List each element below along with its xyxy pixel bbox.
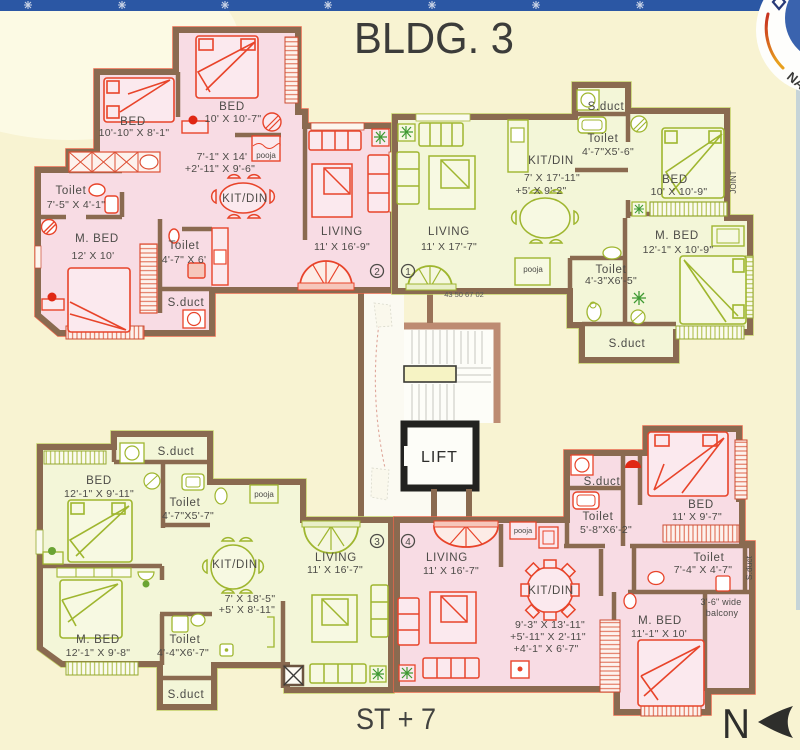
svg-text:4'-4"X6'-7": 4'-4"X6'-7" (157, 647, 209, 659)
svg-text:Toilet: Toilet (169, 634, 200, 646)
svg-text:LIVING: LIVING (426, 552, 468, 564)
svg-text:2: 2 (374, 267, 380, 278)
svg-text:+5'-11" X 2'-11": +5'-11" X 2'-11" (510, 631, 586, 643)
svg-text:M. BED: M. BED (76, 634, 120, 646)
svg-text:BED: BED (86, 475, 112, 487)
svg-text:7'-1" X 14': 7'-1" X 14' (197, 151, 248, 163)
svg-text:LIVING: LIVING (315, 552, 357, 564)
svg-text:10' X 10'-7": 10' X 10'-7" (205, 113, 262, 125)
svg-text:+2'-11" X 9'-6": +2'-11" X 9'-6" (185, 163, 255, 175)
svg-text:7'-4" X 4'-7": 7'-4" X 4'-7" (674, 564, 733, 576)
svg-text:4'-7"X5'-6": 4'-7"X5'-6" (582, 146, 634, 158)
svg-text:ST + 7: ST + 7 (356, 703, 436, 736)
svg-text:LIVING: LIVING (321, 226, 363, 238)
svg-text:S.duct: S.duct (609, 338, 646, 350)
svg-text:LIVING: LIVING (428, 226, 470, 238)
svg-text:M. BED: M. BED (638, 615, 682, 627)
svg-text:+4'-1" X 6'-7": +4'-1" X 6'-7" (514, 643, 579, 655)
svg-text:KIT/DIN: KIT/DIN (212, 559, 258, 571)
svg-text:12' X 10': 12' X 10' (72, 250, 115, 262)
svg-text:pooja: pooja (254, 490, 274, 499)
svg-text:Toilet: Toilet (693, 552, 724, 564)
svg-text:BED: BED (219, 101, 245, 113)
svg-text:KIT/DIN: KIT/DIN (528, 585, 574, 597)
svg-text:S.duct: S.duct (744, 555, 754, 580)
svg-text:M. BED: M. BED (655, 230, 699, 242)
svg-text:pooja: pooja (256, 151, 276, 160)
svg-text:Toilet: Toilet (582, 511, 613, 523)
svg-text:M. BED: M. BED (75, 233, 119, 245)
svg-text:S.duct: S.duct (168, 689, 205, 701)
svg-text:4'-7" X 6': 4'-7" X 6' (162, 254, 207, 266)
svg-text:BLDG. 3: BLDG. 3 (354, 14, 514, 63)
svg-text:Toilet: Toilet (55, 185, 86, 197)
svg-text:12'-1" X 9'-8": 12'-1" X 9'-8" (66, 647, 131, 659)
svg-text:3'-6" wide: 3'-6" wide (701, 597, 742, 607)
svg-text:Toilet: Toilet (169, 497, 200, 509)
svg-text:balcony: balcony (706, 608, 739, 618)
svg-text:BED: BED (688, 499, 714, 511)
svg-text:N: N (722, 700, 750, 747)
svg-text:S.duct: S.duct (168, 297, 205, 309)
svg-text:BED: BED (662, 174, 688, 186)
svg-text:pooja: pooja (514, 526, 533, 535)
svg-text:11' X 16'-7": 11' X 16'-7" (423, 565, 479, 577)
svg-text:10'-10" X 8'-1": 10'-10" X 8'-1" (99, 127, 170, 139)
svg-text:5'-8"X6'-2": 5'-8"X6'-2" (580, 524, 632, 536)
svg-text:9'-3" X 13'-11": 9'-3" X 13'-11" (515, 619, 585, 631)
svg-text:43 50 67 02: 43 50 67 02 (444, 290, 484, 299)
svg-text:11'-1" X 10': 11'-1" X 10' (631, 628, 687, 640)
svg-text:10' X 10'-9": 10' X 10'-9" (651, 186, 708, 198)
svg-text:KIT/DIN: KIT/DIN (222, 193, 268, 205)
svg-text:7'-5" X 4'-1": 7'-5" X 4'-1" (47, 199, 106, 211)
svg-text:1: 1 (405, 267, 411, 278)
svg-text:12'-1" X 9'-11": 12'-1" X 9'-11" (64, 488, 134, 500)
svg-text:11' X 17'-7": 11' X 17'-7" (421, 241, 477, 253)
svg-text:12'-1" X 10'-9": 12'-1" X 10'-9" (643, 244, 714, 256)
svg-text:+5' X 8'-11": +5' X 8'-11" (219, 604, 275, 616)
svg-text:11' X 16'-9": 11' X 16'-9" (314, 241, 370, 253)
svg-text:4: 4 (405, 537, 411, 548)
svg-text:S.duct: S.duct (588, 101, 625, 113)
svg-text:Toilet: Toilet (587, 133, 618, 145)
svg-text:11' X 9'-7": 11' X 9'-7" (672, 511, 722, 523)
svg-text:3: 3 (374, 537, 380, 548)
svg-text:+5' X 9'-2": +5' X 9'-2" (515, 185, 566, 197)
svg-text:4'-3"X6'-5": 4'-3"X6'-5" (585, 275, 637, 287)
svg-text:Toilet: Toilet (168, 240, 199, 252)
svg-text:11' X 16'-7": 11' X 16'-7" (307, 564, 363, 576)
svg-text:4'-7"X5'-7": 4'-7"X5'-7" (162, 510, 214, 522)
svg-text:7' X 17'-11": 7' X 17'-11" (524, 172, 580, 184)
svg-text:KIT/DIN: KIT/DIN (528, 155, 574, 167)
svg-text:S.duct: S.duct (158, 446, 195, 458)
svg-text:pooja: pooja (523, 265, 543, 274)
svg-text:S.duct: S.duct (584, 476, 621, 488)
svg-text:LIFT: LIFT (421, 449, 458, 466)
svg-text:JOINT: JOINT (729, 170, 738, 193)
